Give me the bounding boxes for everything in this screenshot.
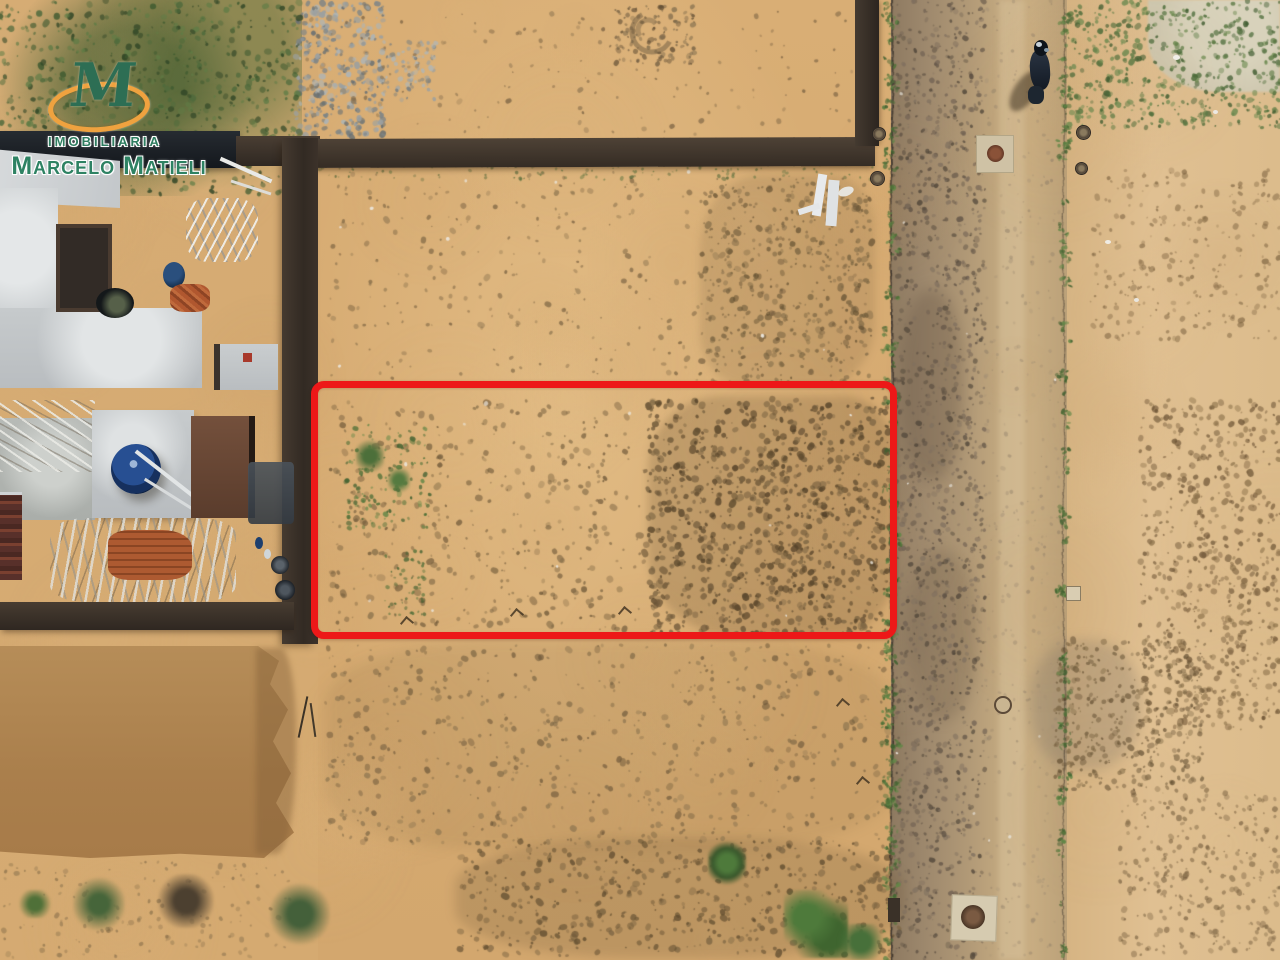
lumber-sticks: [0, 400, 95, 472]
utility-cover: [1075, 162, 1088, 175]
concrete-slab-house1-wing: [0, 308, 202, 388]
trash-white: [1173, 55, 1180, 60]
aerial-photo-scene: M IMOBILIARIA Marcelo Matieli: [0, 0, 1280, 960]
logo-monogram: M: [56, 54, 149, 122]
brick-pallet-dark: [0, 492, 22, 580]
agency-watermark: M IMOBILIARIA Marcelo Matieli: [0, 28, 218, 168]
trash-white: [1134, 298, 1139, 302]
motorcycle-tail: [1028, 86, 1044, 104]
outbuilding-slab: [214, 344, 278, 390]
plot-boundary-rectangle: [311, 381, 897, 639]
barrel-dark: [275, 580, 295, 600]
tiled-roof-brown: [191, 416, 255, 518]
shrub: [270, 882, 330, 946]
manhole-cover: [961, 905, 985, 929]
helmet-glint: [1044, 48, 1049, 52]
trash-white: [1213, 110, 1218, 114]
graded-dirt-pad: [0, 646, 300, 858]
curb-marker: [888, 898, 900, 922]
boundary-wall-top: [299, 137, 875, 168]
water-tank-dark: [96, 288, 134, 318]
shrub: [73, 876, 125, 932]
annex-dark-materials: [248, 462, 294, 524]
barrel-dark: [271, 556, 289, 574]
utility-cover-mid-road: [994, 696, 1012, 714]
chimney-red: [243, 353, 252, 362]
boundary-marker: [1066, 586, 1081, 601]
green-bush: [834, 924, 888, 960]
shrub: [18, 890, 52, 918]
trash-white: [1105, 240, 1111, 244]
boundary-wall-bottom-left: [0, 602, 294, 630]
boundary-wall-right-top: [855, 0, 879, 146]
utility-cover: [872, 127, 886, 141]
worker-figure: [264, 549, 271, 559]
shrub-dark: [158, 874, 214, 928]
manhole-cover: [987, 145, 1004, 162]
watermark-line2: Marcelo Matieli: [0, 152, 218, 184]
motorcyclist: [1014, 40, 1060, 112]
brick-pile-large: [108, 530, 192, 580]
lumber-debris-pile: [186, 198, 258, 262]
worker-figure: [255, 537, 263, 549]
utility-cover: [870, 171, 885, 186]
brick-pile-small: [170, 284, 210, 312]
pad-edge-mound: [256, 648, 296, 854]
green-bush: [708, 840, 746, 886]
helmet-glint: [1036, 42, 1042, 47]
watermark-line1: IMOBILIARIA: [2, 134, 208, 151]
utility-cover: [1076, 125, 1091, 140]
